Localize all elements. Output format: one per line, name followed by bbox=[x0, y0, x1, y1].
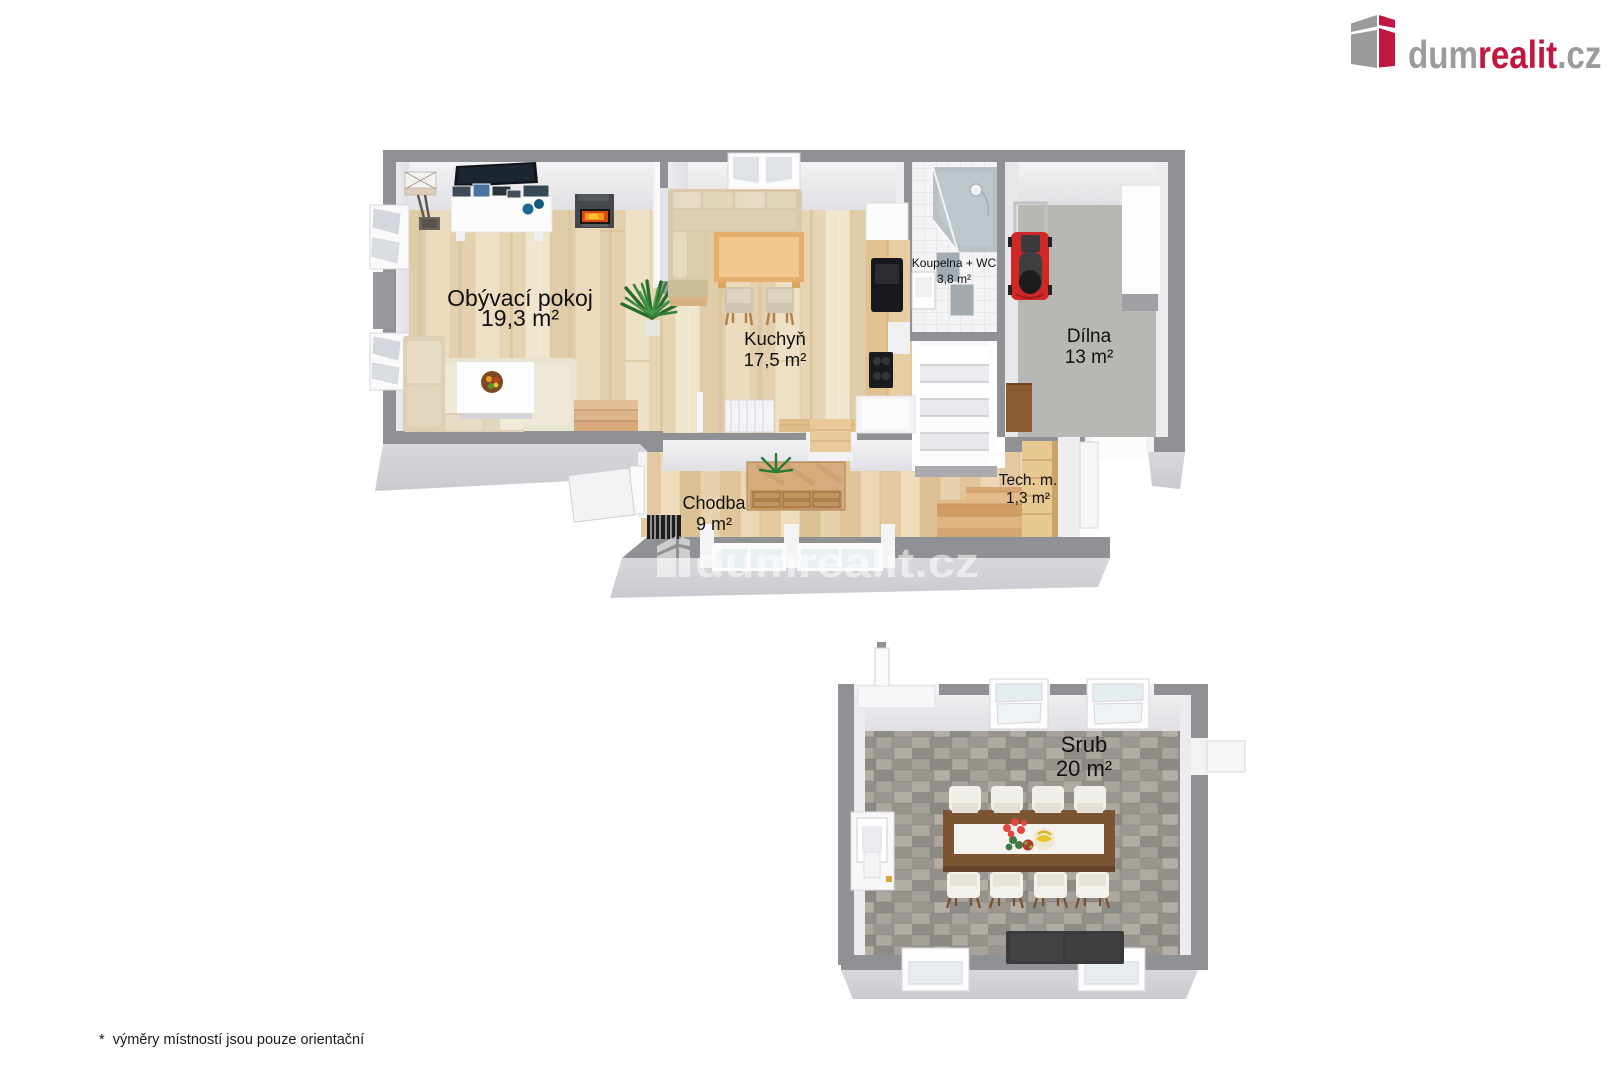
svg-text:3,8 m²: 3,8 m² bbox=[937, 272, 971, 286]
svg-text:Koupelna + WC: Koupelna + WC bbox=[912, 256, 997, 270]
svg-text:dumrealit.cz: dumrealit.cz bbox=[695, 539, 979, 586]
svg-text:dumrealit.cz: dumrealit.cz bbox=[1408, 32, 1601, 76]
svg-text:13 m²: 13 m² bbox=[1065, 347, 1114, 368]
svg-text:9 m²: 9 m² bbox=[696, 514, 732, 534]
svg-text:Kuchyň: Kuchyň bbox=[744, 328, 806, 349]
svg-text:Dílna: Dílna bbox=[1067, 326, 1112, 347]
svg-text:Srub: Srub bbox=[1061, 732, 1107, 757]
svg-text:* výměry místností jsou pouze: * výměry místností jsou pouze orientační bbox=[99, 1032, 364, 1048]
svg-text:Chodba: Chodba bbox=[682, 493, 746, 513]
svg-text:19,3 m²: 19,3 m² bbox=[481, 305, 559, 331]
svg-text:20 m²: 20 m² bbox=[1056, 756, 1112, 781]
svg-text:1,3 m²: 1,3 m² bbox=[1006, 490, 1050, 507]
svg-text:17,5 m²: 17,5 m² bbox=[744, 349, 807, 370]
svg-text:Tech. m.: Tech. m. bbox=[999, 472, 1058, 489]
